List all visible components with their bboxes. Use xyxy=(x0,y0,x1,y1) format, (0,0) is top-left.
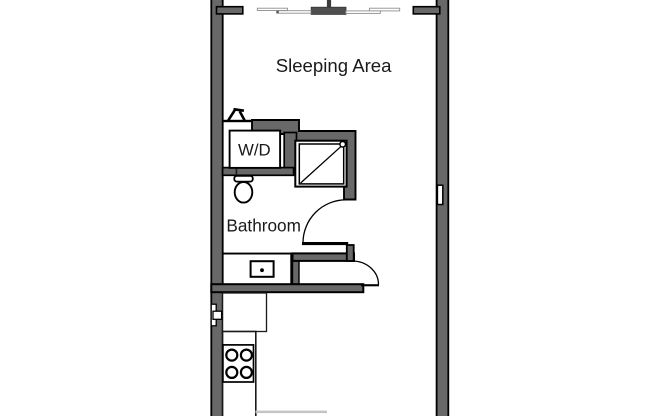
svg-text:Bathroom: Bathroom xyxy=(226,216,301,236)
svg-text:Sleeping Area: Sleeping Area xyxy=(276,55,392,76)
svg-text:W/D: W/D xyxy=(238,141,271,160)
